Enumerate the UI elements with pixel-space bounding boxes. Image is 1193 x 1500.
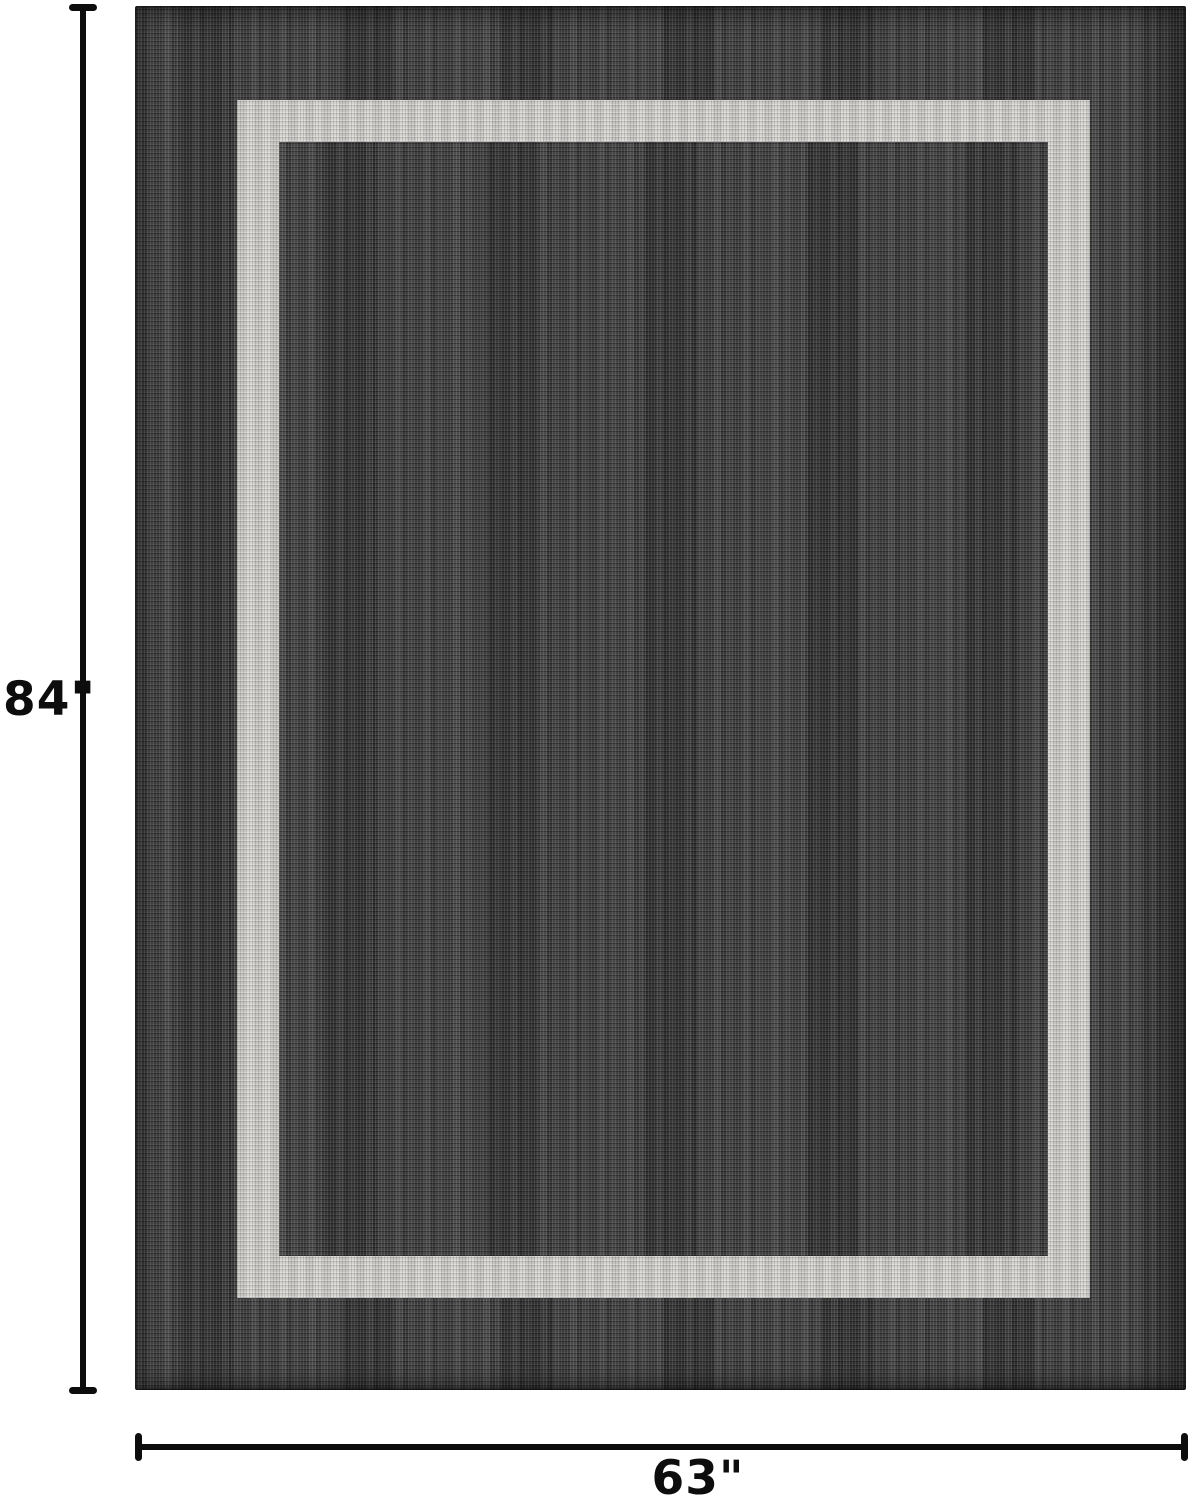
height-dimension-top-cap xyxy=(69,4,97,11)
height-dimension-bottom-cap xyxy=(69,1387,97,1394)
width-dimension-left-cap xyxy=(135,1433,142,1461)
product-dimension-image: 84" 63" xyxy=(0,0,1193,1500)
rug-inner-field xyxy=(279,142,1048,1256)
height-dimension-label: 84" xyxy=(3,676,96,723)
width-dimension-label: 63" xyxy=(652,1455,745,1500)
rug-border-band xyxy=(237,100,1090,1298)
rug-image xyxy=(135,6,1186,1390)
width-dimension-right-cap xyxy=(1181,1433,1188,1461)
width-dimension-line xyxy=(137,1444,1187,1450)
